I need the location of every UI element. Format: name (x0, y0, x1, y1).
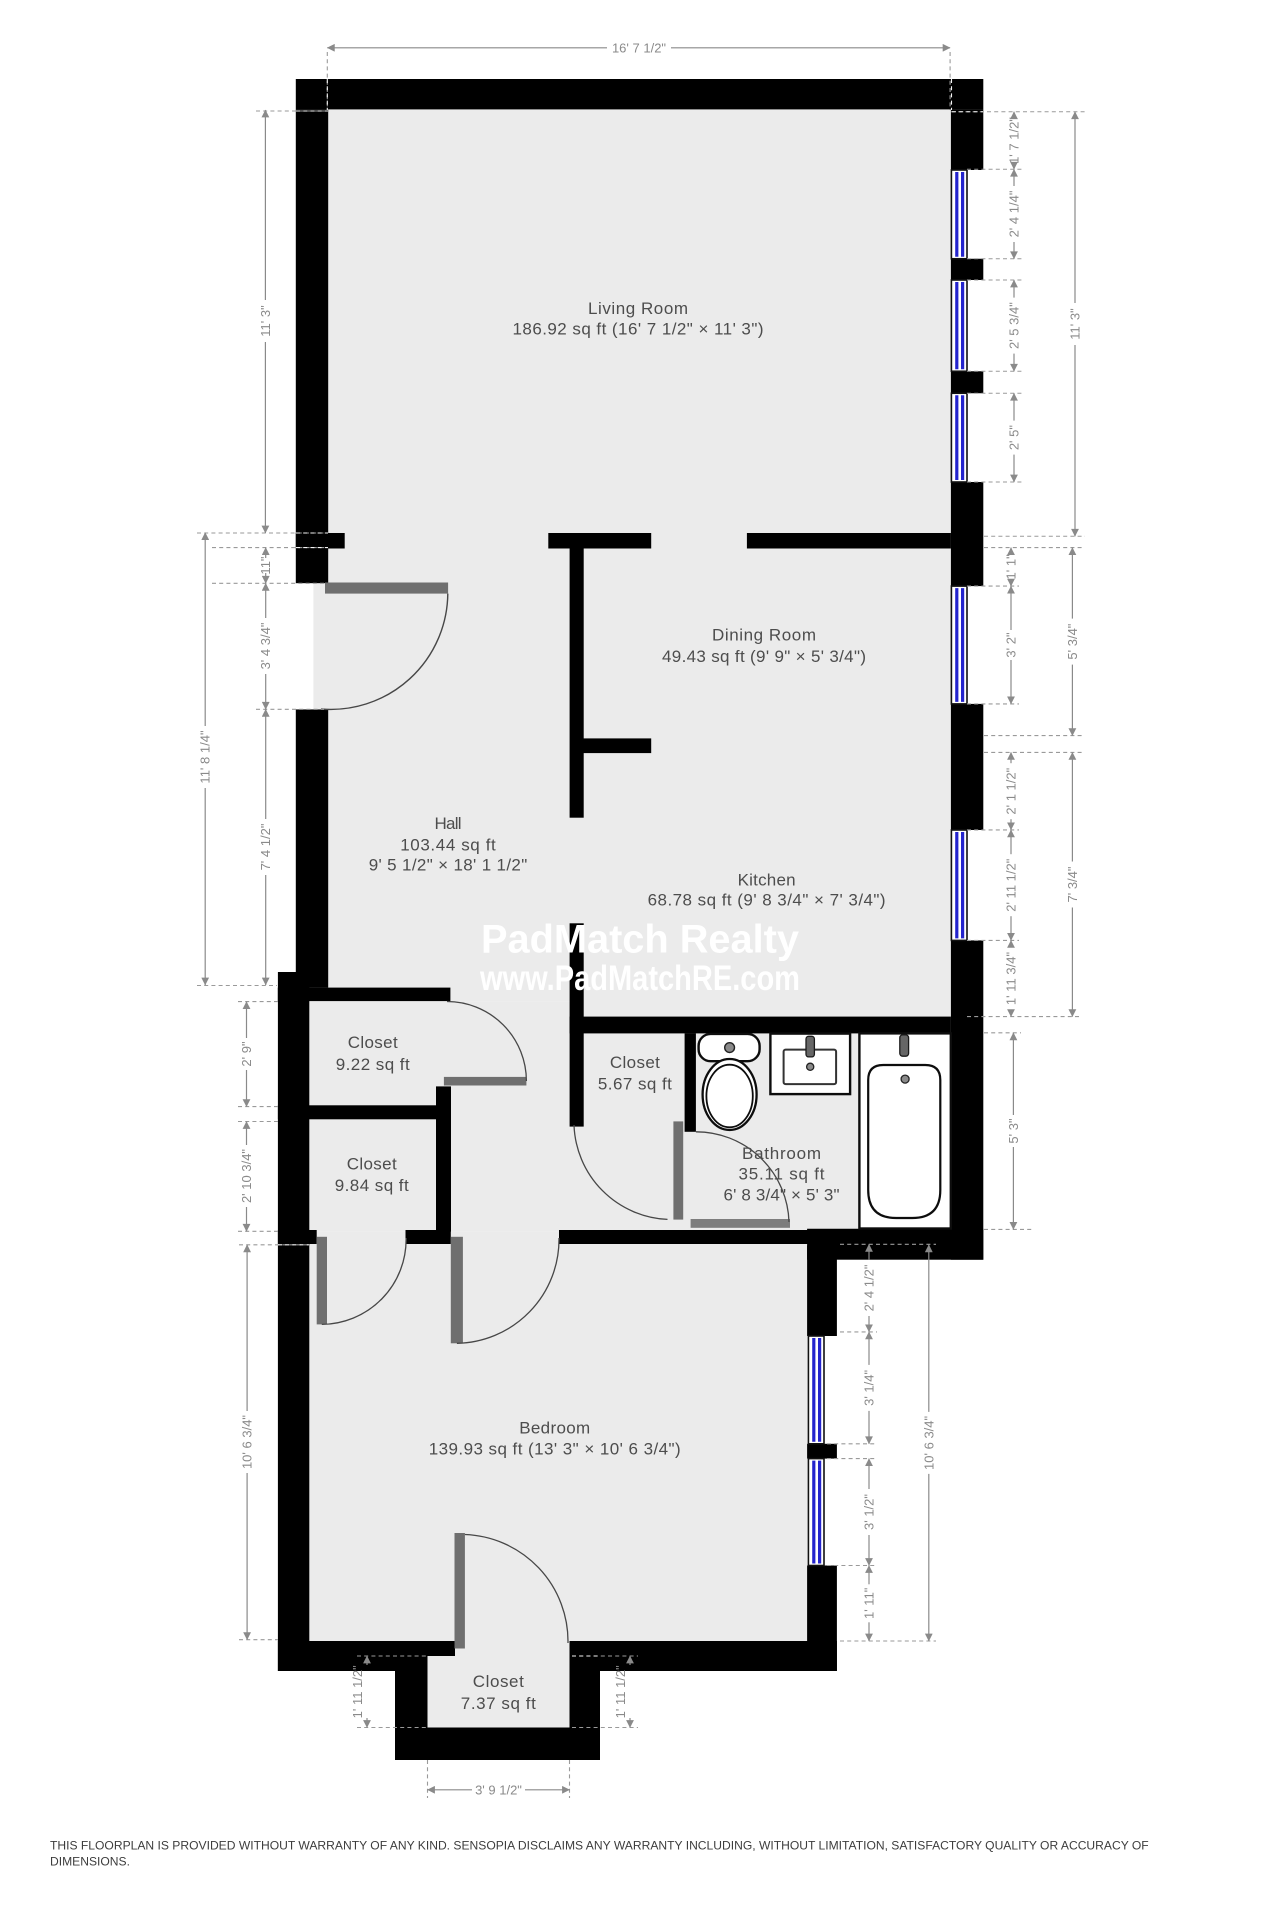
svg-text:www.PadMatchRE.com: www.PadMatchRE.com (479, 959, 800, 998)
svg-text:DIMENSIONS.: DIMENSIONS. (50, 1855, 130, 1869)
svg-text:Closet: Closet (347, 1155, 397, 1174)
svg-text:9' 5 1/2" × 18' 1 1/2": 9' 5 1/2" × 18' 1 1/2" (369, 856, 528, 875)
svg-text:3' 4 3/4": 3' 4 3/4" (258, 622, 273, 669)
svg-text:Living Room: Living Room (588, 299, 688, 318)
svg-text:1' 11": 1' 11" (862, 1587, 877, 1619)
svg-text:9.22 sq ft: 9.22 sq ft (336, 1055, 410, 1074)
svg-text:7' 3/4": 7' 3/4" (1065, 866, 1080, 902)
svg-text:1' 7 1/2": 1' 7 1/2" (1007, 117, 1022, 164)
svg-text:11' 3": 11' 3" (258, 305, 273, 337)
svg-text:Bedroom: Bedroom (519, 1419, 590, 1438)
svg-text:7.37 sq ft: 7.37 sq ft (461, 1694, 536, 1713)
svg-text:3' 9 1/2": 3' 9 1/2" (475, 1782, 522, 1797)
svg-text:1' 1": 1' 1" (1004, 554, 1019, 580)
svg-text:1' 11 1/2": 1' 11 1/2" (350, 1665, 365, 1719)
svg-text:6' 8 3/4" × 5' 3": 6' 8 3/4" × 5' 3" (724, 1185, 840, 1204)
svg-text:2' 1 1/2": 2' 1 1/2" (1004, 767, 1019, 814)
svg-text:11' 3": 11' 3" (1068, 308, 1083, 340)
svg-text:Kitchen: Kitchen (738, 871, 796, 890)
svg-text:5.67 sq ft: 5.67 sq ft (598, 1074, 672, 1093)
svg-text:PadMatch Realty: PadMatch Realty (481, 918, 800, 962)
svg-text:7' 4 1/2": 7' 4 1/2" (258, 823, 273, 870)
svg-text:Bathroom: Bathroom (742, 1144, 821, 1163)
svg-text:10' 6 3/4": 10' 6 3/4" (240, 1415, 255, 1469)
svg-text:9.84 sq ft: 9.84 sq ft (335, 1176, 409, 1195)
svg-text:2' 4 1/2": 2' 4 1/2" (862, 1264, 877, 1311)
svg-text:3' 1/4": 3' 1/4" (862, 1370, 877, 1406)
svg-text:2' 5": 2' 5" (1007, 425, 1022, 451)
svg-text:Hall: Hall (435, 814, 462, 833)
svg-text:5' 3/4": 5' 3/4" (1065, 623, 1080, 659)
svg-text:3' 1/2": 3' 1/2" (862, 1494, 877, 1530)
svg-text:49.43 sq ft (9' 9" × 5' 3/4"): 49.43 sq ft (9' 9" × 5' 3/4") (662, 647, 866, 666)
svg-text:11": 11" (258, 556, 273, 574)
svg-text:2' 4 1/4": 2' 4 1/4" (1007, 190, 1022, 237)
svg-text:11' 8 1/4": 11' 8 1/4" (198, 730, 213, 784)
svg-text:Dining Room: Dining Room (712, 625, 816, 644)
svg-text:THIS FLOORPLAN IS PROVIDED WIT: THIS FLOORPLAN IS PROVIDED WITHOUT WARRA… (50, 1839, 1149, 1853)
svg-text:35.11 sq ft: 35.11 sq ft (739, 1165, 825, 1184)
svg-text:2' 11 1/2": 2' 11 1/2" (1004, 858, 1019, 912)
svg-text:10' 6 3/4": 10' 6 3/4" (921, 1415, 936, 1469)
svg-text:139.93 sq ft (13' 3" × 10' 6 3: 139.93 sq ft (13' 3" × 10' 6 3/4") (429, 1439, 681, 1458)
svg-text:3' 2": 3' 2" (1004, 632, 1019, 658)
svg-text:1' 11 1/2": 1' 11 1/2" (613, 1665, 628, 1719)
svg-text:186.92 sq ft (16' 7 1/2" × 11': 186.92 sq ft (16' 7 1/2" × 11' 3") (513, 320, 764, 339)
svg-text:Closet: Closet (348, 1033, 398, 1052)
svg-text:68.78 sq ft (9' 8 3/4" × 7' 3/: 68.78 sq ft (9' 8 3/4" × 7' 3/4") (648, 890, 886, 909)
svg-text:2' 10 3/4": 2' 10 3/4" (239, 1149, 254, 1203)
svg-text:16' 7 1/2": 16' 7 1/2" (612, 40, 666, 55)
svg-text:Closet: Closet (610, 1053, 660, 1072)
svg-text:103.44 sq ft: 103.44 sq ft (400, 835, 496, 854)
svg-text:5' 3": 5' 3" (1006, 1118, 1021, 1144)
svg-text:1' 11 3/4": 1' 11 3/4" (1004, 952, 1019, 1006)
svg-text:Closet: Closet (473, 1672, 524, 1691)
svg-text:2' 9": 2' 9" (239, 1041, 254, 1067)
svg-text:2' 5 3/4": 2' 5 3/4" (1007, 302, 1022, 349)
